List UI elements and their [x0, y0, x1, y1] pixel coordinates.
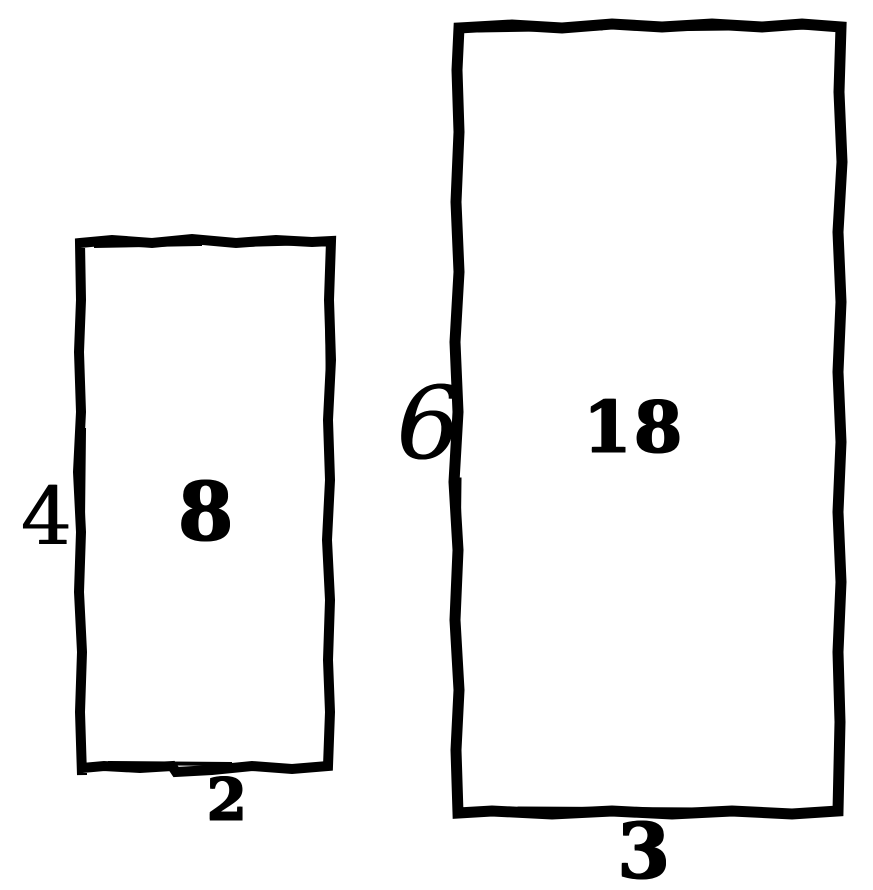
small-rectangle-side-label: 4	[21, 477, 72, 557]
small-rectangle-area-label: 8	[177, 471, 233, 551]
small-rectangle-base-label: 2	[206, 770, 246, 828]
area-diagram: 4 8 2 6 18 3	[0, 0, 873, 890]
large-rectangle-area-label: 18	[582, 392, 683, 462]
large-rectangle-side-label: 6	[396, 374, 460, 474]
large-rectangle-base-label: 3	[617, 813, 670, 889]
